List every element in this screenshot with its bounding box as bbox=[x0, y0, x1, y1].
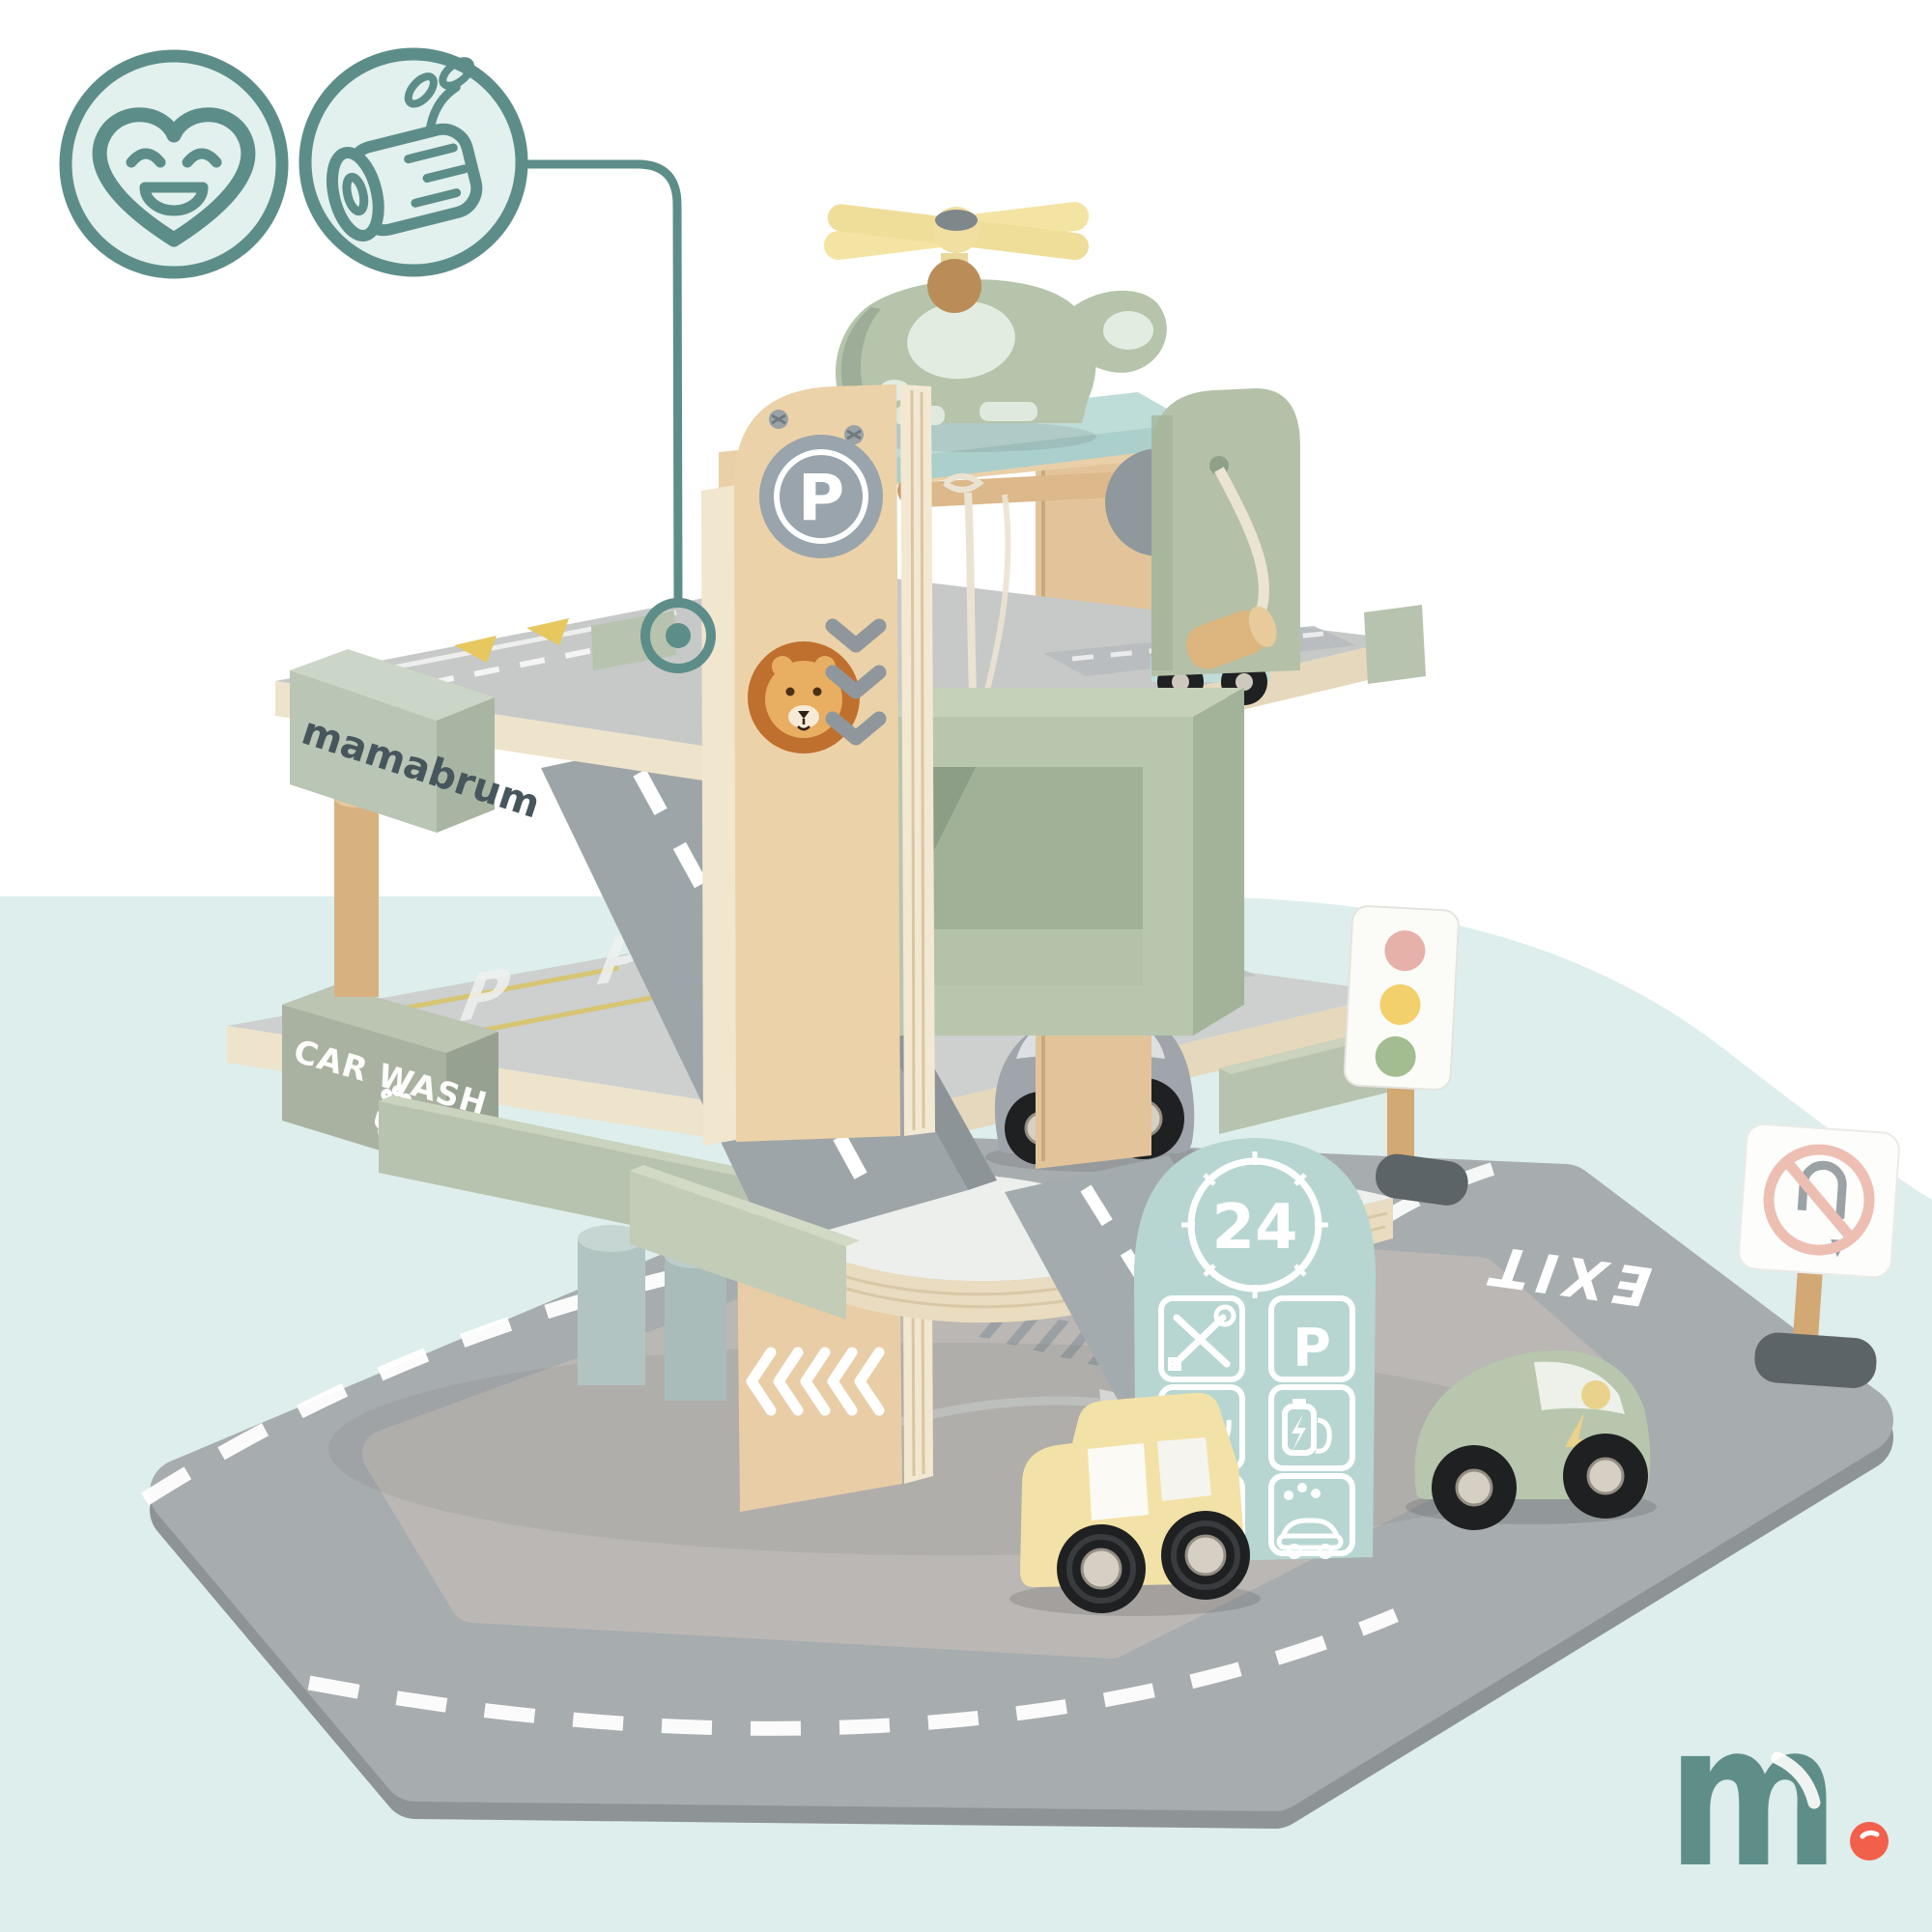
parking-badge: P bbox=[759, 435, 883, 558]
car-window bbox=[1088, 1443, 1149, 1520]
rotor-ball bbox=[927, 259, 981, 313]
logo-dot bbox=[1850, 1822, 1889, 1861]
heart-smile-icon bbox=[66, 56, 282, 272]
toy-garage-scene: EXIT P P CAR WASH bbox=[0, 0, 1932, 1932]
service-parking-letter: P bbox=[1293, 1318, 1331, 1378]
elevator-rope bbox=[968, 493, 974, 715]
rotor-blades bbox=[822, 200, 1091, 261]
product-photo: EXIT P P CAR WASH bbox=[0, 0, 1932, 1932]
car-window bbox=[1157, 1437, 1211, 1501]
wooden-post bbox=[334, 788, 379, 997]
callout-target-dot bbox=[666, 623, 691, 648]
service-hours-label: 24 bbox=[1211, 1192, 1297, 1264]
structure-shadow bbox=[328, 1343, 1565, 1555]
lion-sticker bbox=[748, 641, 860, 753]
wood-log-icon bbox=[305, 54, 522, 270]
parking-badge-letter: P bbox=[798, 461, 844, 535]
car-dot bbox=[1581, 1380, 1610, 1409]
deck-barrier bbox=[1364, 605, 1426, 684]
